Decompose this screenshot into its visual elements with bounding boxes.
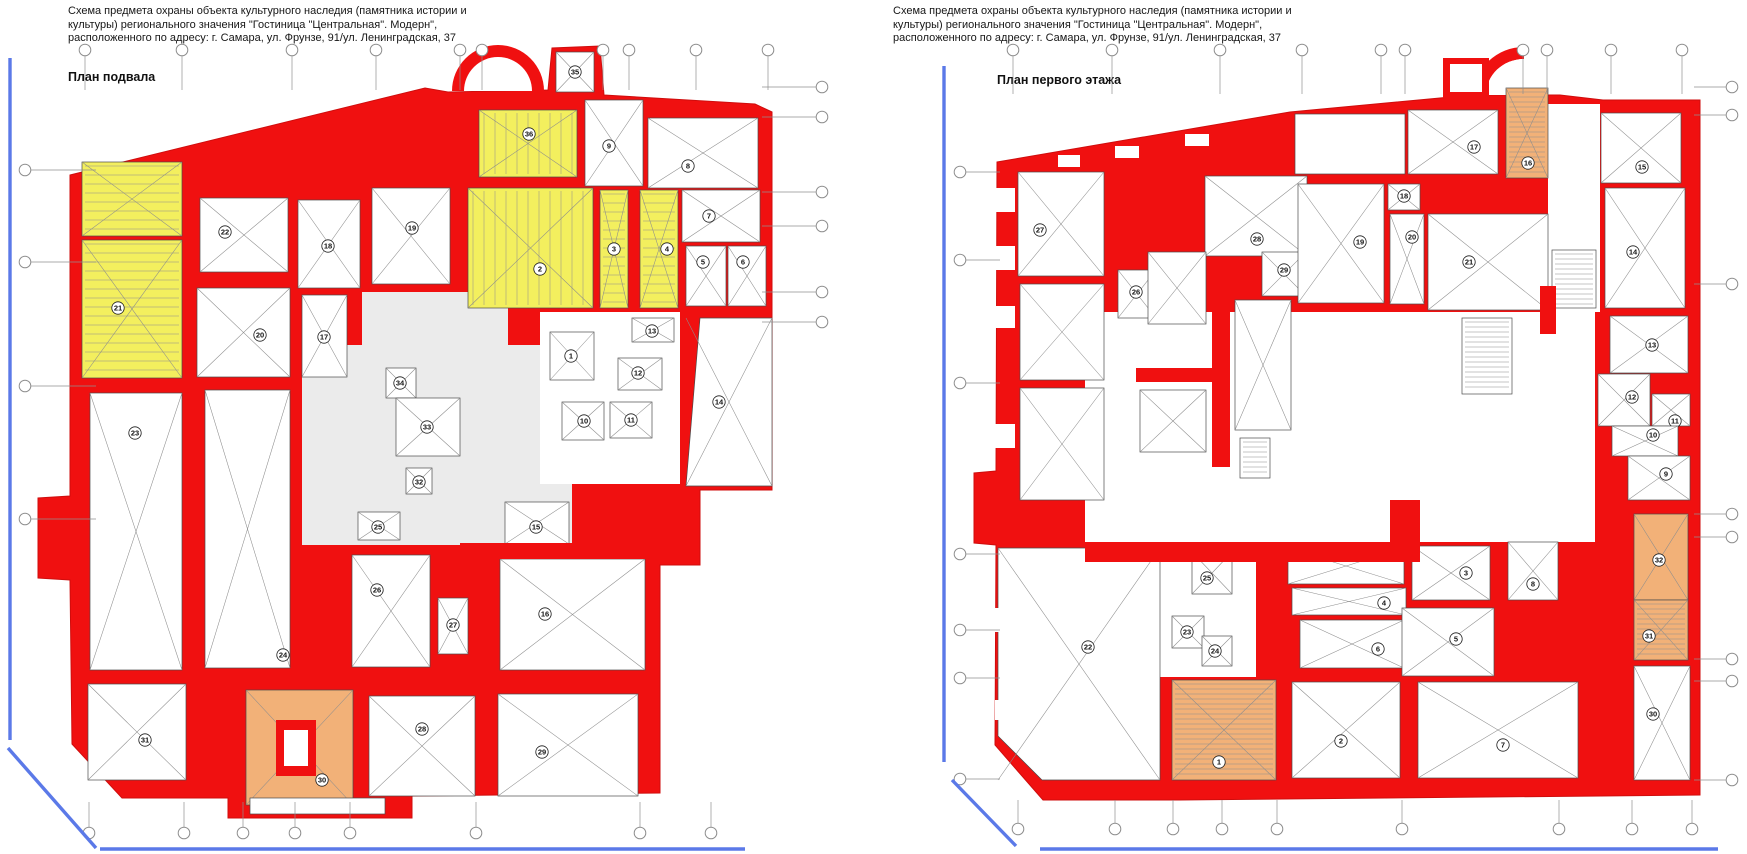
axis-marker bbox=[1214, 44, 1226, 56]
axis-marker bbox=[176, 44, 188, 56]
basement-plan-wall-detail-2 bbox=[284, 730, 308, 766]
first-floor-plan-wall-detail-15 bbox=[1185, 134, 1209, 146]
axis-marker bbox=[1271, 823, 1283, 835]
room-number: 11 bbox=[627, 416, 635, 425]
first-floor-plan-wall-detail-4 bbox=[1540, 286, 1556, 334]
axis-marker bbox=[178, 827, 190, 839]
room-number: 35 bbox=[571, 68, 579, 77]
room-number: 30 bbox=[318, 776, 326, 785]
room bbox=[1462, 318, 1512, 394]
first-floor-plan-wall-detail-10 bbox=[995, 424, 1015, 448]
floor-plans-drawing: 2122181936359823475620171311210111434333… bbox=[0, 0, 1747, 854]
room-number: 30 bbox=[1649, 710, 1657, 719]
axis-marker bbox=[19, 256, 31, 268]
room-number: 32 bbox=[1655, 556, 1663, 565]
axis-marker bbox=[470, 827, 482, 839]
room-number: 14 bbox=[1629, 248, 1638, 257]
room-number: 21 bbox=[114, 304, 122, 313]
room-number: 23 bbox=[1183, 628, 1191, 637]
axis-marker bbox=[286, 44, 298, 56]
room-number: 8 bbox=[686, 162, 690, 171]
first-floor-plan: 2728292617161518192021141312111093231303… bbox=[944, 44, 1738, 849]
room-number: 13 bbox=[1648, 341, 1656, 350]
axis-marker bbox=[454, 44, 466, 56]
axis-marker bbox=[1399, 44, 1411, 56]
room-number: 31 bbox=[141, 736, 149, 745]
axis-marker bbox=[1726, 675, 1738, 687]
plans-svg: 2122181936359823475620171311210111434333… bbox=[0, 0, 1747, 854]
first-floor-plan-wall-detail-12 bbox=[995, 700, 1015, 720]
room-number: 17 bbox=[1470, 143, 1478, 152]
room-number: 25 bbox=[374, 523, 382, 532]
axis-marker bbox=[705, 827, 717, 839]
basement-plan-wall-detail-0 bbox=[460, 543, 650, 559]
room-number: 1 bbox=[569, 352, 573, 361]
room-number: 5 bbox=[701, 258, 705, 267]
room-number: 20 bbox=[256, 331, 264, 340]
room bbox=[1295, 114, 1405, 174]
first-floor-plan-wall-detail-7 bbox=[995, 188, 1015, 212]
first-floor-plan-wall-detail-6 bbox=[1136, 368, 1214, 382]
axis-marker bbox=[1726, 653, 1738, 665]
room-number: 10 bbox=[580, 417, 588, 426]
room-number: 24 bbox=[1211, 647, 1220, 656]
room-number: 15 bbox=[532, 523, 540, 532]
first-floor-plan-wall-detail-5 bbox=[1212, 312, 1230, 467]
room-number: 17 bbox=[320, 333, 328, 342]
axis-marker bbox=[1726, 508, 1738, 520]
room-number: 6 bbox=[1376, 645, 1380, 654]
room-number: 13 bbox=[648, 327, 656, 336]
room-number: 7 bbox=[1501, 741, 1505, 750]
axis-marker bbox=[816, 220, 828, 232]
room-number: 36 bbox=[525, 130, 533, 139]
axis-marker bbox=[79, 44, 91, 56]
axis-marker bbox=[1676, 44, 1688, 56]
axis-marker bbox=[1012, 823, 1024, 835]
room-number: 15 bbox=[1638, 163, 1646, 172]
axis-marker bbox=[1626, 823, 1638, 835]
room-number: 6 bbox=[741, 258, 745, 267]
room-number: 3 bbox=[612, 245, 616, 254]
axis-marker bbox=[1106, 44, 1118, 56]
axis-marker bbox=[19, 380, 31, 392]
axis-marker bbox=[1686, 823, 1698, 835]
room-number: 11 bbox=[1671, 417, 1679, 426]
first-floor-plan-wall-detail-3 bbox=[1390, 500, 1420, 562]
axis-marker bbox=[289, 827, 301, 839]
axis-marker bbox=[634, 827, 646, 839]
room-number: 29 bbox=[538, 748, 546, 757]
axis-marker bbox=[816, 81, 828, 93]
axis-marker bbox=[597, 44, 609, 56]
axis-marker bbox=[1726, 109, 1738, 121]
room-number: 9 bbox=[607, 142, 611, 151]
axis-marker bbox=[19, 164, 31, 176]
axis-marker bbox=[816, 111, 828, 123]
room-number: 28 bbox=[418, 725, 426, 734]
axis-marker bbox=[954, 166, 966, 178]
axis-marker bbox=[816, 286, 828, 298]
room-number: 3 bbox=[1464, 569, 1468, 578]
axis-marker bbox=[690, 44, 702, 56]
first-floor-plan-street-boundary-1 bbox=[952, 780, 1016, 846]
axis-marker bbox=[1553, 823, 1565, 835]
first-floor-plan-wall-detail-9 bbox=[995, 306, 1015, 328]
axis-marker bbox=[1109, 823, 1121, 835]
axis-marker bbox=[1517, 44, 1529, 56]
room-number: 5 bbox=[1454, 635, 1458, 644]
room-number: 8 bbox=[1531, 580, 1535, 589]
first-floor-plan-wall-detail-13 bbox=[1058, 155, 1080, 167]
axis-marker bbox=[1541, 44, 1553, 56]
axis-marker bbox=[1375, 44, 1387, 56]
axis-marker bbox=[237, 827, 249, 839]
room-number: 12 bbox=[634, 369, 642, 378]
axis-marker bbox=[1726, 531, 1738, 543]
axis-marker bbox=[623, 44, 635, 56]
room-number: 2 bbox=[1339, 737, 1343, 746]
first-floor-plan-wall-detail-1 bbox=[1450, 64, 1482, 92]
room-number: 27 bbox=[449, 621, 457, 630]
room-number: 24 bbox=[279, 651, 288, 660]
room-number: 32 bbox=[415, 478, 423, 487]
first-floor-plan-wall-detail-14 bbox=[1115, 146, 1139, 158]
room-number: 28 bbox=[1253, 235, 1261, 244]
axis-marker bbox=[1396, 823, 1408, 835]
first-floor-plan-wall-detail-8 bbox=[995, 246, 1015, 270]
axis-marker bbox=[1605, 44, 1617, 56]
room-number: 16 bbox=[541, 610, 549, 619]
axis-marker bbox=[344, 827, 356, 839]
room-number: 2 bbox=[538, 265, 542, 274]
room bbox=[250, 798, 385, 814]
axis-marker bbox=[476, 44, 488, 56]
axis-marker bbox=[954, 377, 966, 389]
axis-marker bbox=[1726, 278, 1738, 290]
room-number: 23 bbox=[131, 429, 139, 438]
axis-marker bbox=[762, 44, 774, 56]
room-number: 1 bbox=[1217, 758, 1221, 767]
axis-marker bbox=[19, 513, 31, 525]
room-number: 16 bbox=[1524, 159, 1532, 168]
room-number: 26 bbox=[373, 586, 381, 595]
room-number: 25 bbox=[1203, 574, 1211, 583]
axis-marker bbox=[1726, 81, 1738, 93]
room-number: 14 bbox=[715, 398, 724, 407]
axis-marker bbox=[816, 186, 828, 198]
room-number: 20 bbox=[1408, 233, 1416, 242]
axis-marker bbox=[370, 44, 382, 56]
room-number: 33 bbox=[423, 423, 431, 432]
room-number: 9 bbox=[1664, 470, 1668, 479]
room-number: 26 bbox=[1132, 288, 1140, 297]
room-number: 18 bbox=[324, 242, 332, 251]
room-number: 34 bbox=[396, 379, 405, 388]
axis-marker bbox=[816, 316, 828, 328]
axis-marker bbox=[1726, 774, 1738, 786]
room-number: 10 bbox=[1649, 431, 1657, 440]
room-number: 27 bbox=[1036, 226, 1044, 235]
room-number: 19 bbox=[408, 224, 416, 233]
room-number: 31 bbox=[1645, 632, 1653, 641]
room-number: 7 bbox=[707, 212, 711, 221]
room-number: 22 bbox=[1084, 643, 1092, 652]
axis-marker bbox=[954, 548, 966, 560]
axis-marker bbox=[954, 254, 966, 266]
page: Схема предмета охраны объекта культурног… bbox=[0, 0, 1747, 854]
first-floor-plan-wall-detail-11 bbox=[995, 608, 1015, 632]
axis-marker bbox=[1007, 44, 1019, 56]
axis-marker bbox=[954, 672, 966, 684]
axis-marker bbox=[1167, 823, 1179, 835]
room-number: 22 bbox=[221, 228, 229, 237]
basement-plan-street-boundary-1 bbox=[8, 748, 96, 848]
axis-marker bbox=[1296, 44, 1308, 56]
first-floor-plan-wall-detail-2 bbox=[1085, 542, 1395, 562]
room-number: 29 bbox=[1280, 266, 1288, 275]
room-number: 19 bbox=[1356, 238, 1364, 247]
room-number: 18 bbox=[1400, 192, 1408, 201]
room-number: 12 bbox=[1628, 393, 1636, 402]
axis-marker bbox=[1216, 823, 1228, 835]
room-number: 21 bbox=[1465, 258, 1473, 267]
axis-marker bbox=[954, 624, 966, 636]
basement-plan: 2122181936359823475620171311210111434333… bbox=[8, 44, 828, 849]
